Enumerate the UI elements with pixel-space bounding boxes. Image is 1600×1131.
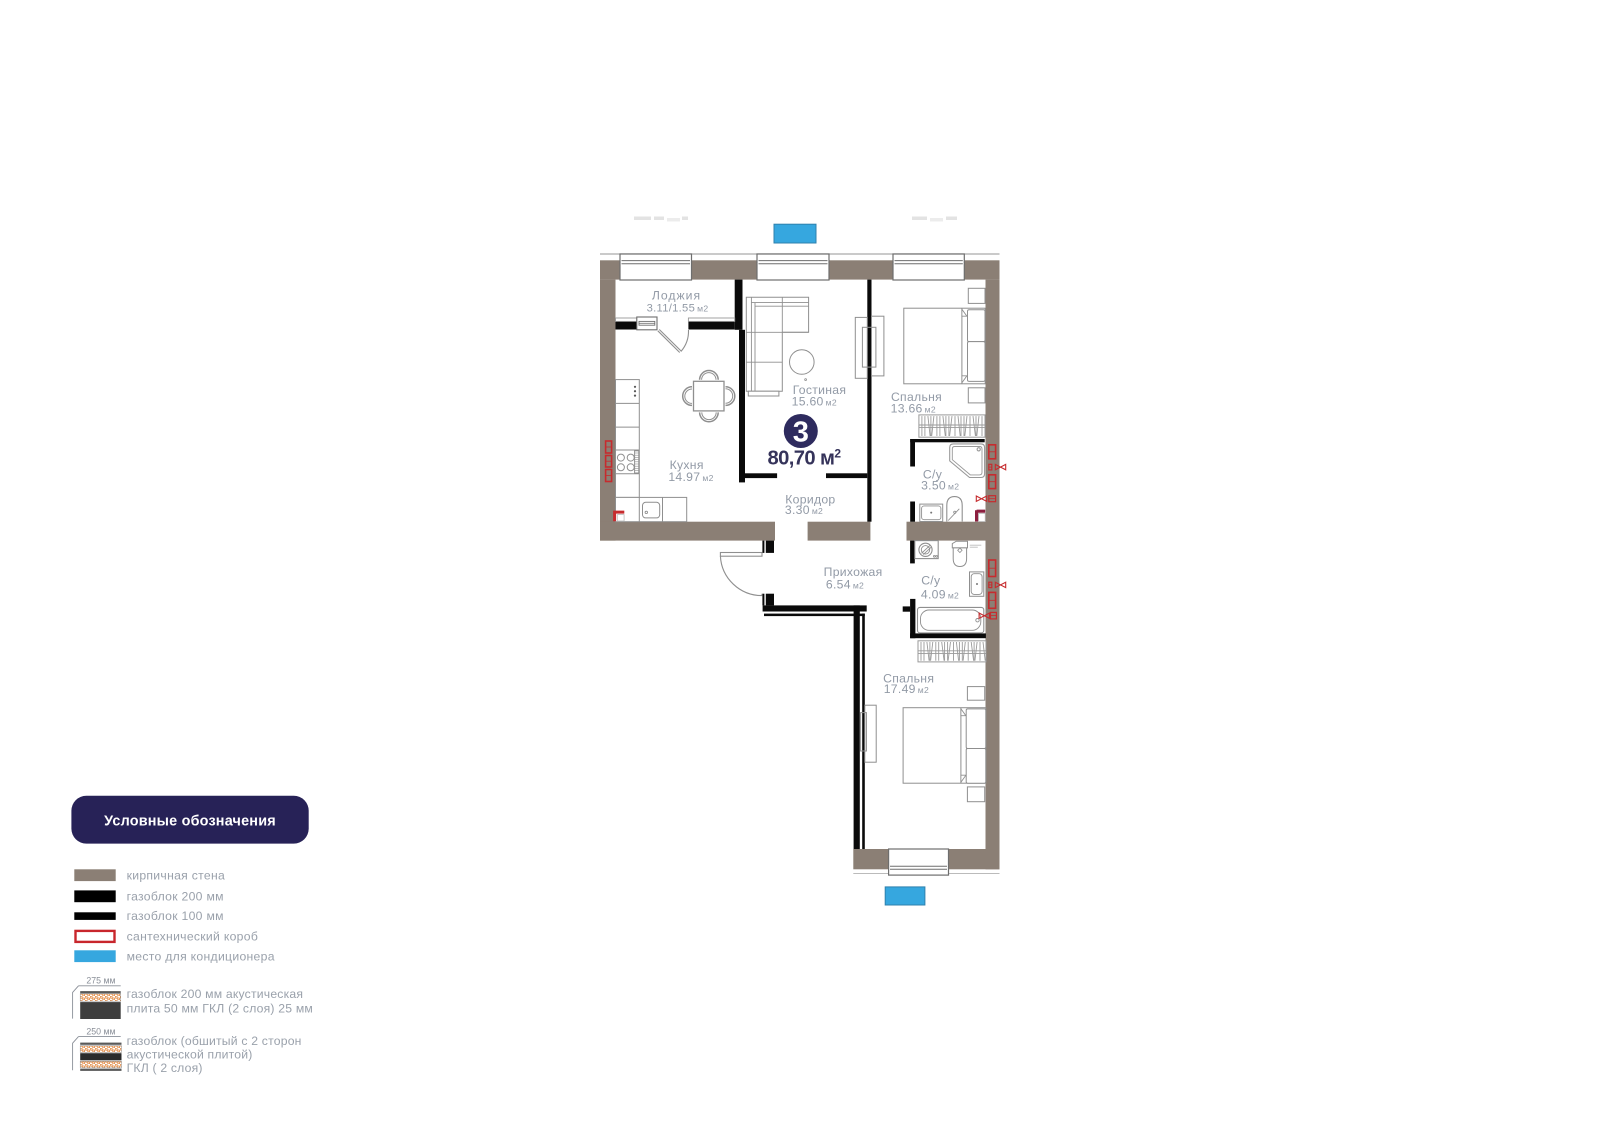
svg-text:250 мм: 250 мм	[86, 1026, 115, 1036]
svg-text:газоблок 200 мм: газоблок 200 мм	[127, 889, 224, 903]
svg-text:14.97 м2: 14.97 м2	[668, 470, 713, 484]
svg-text:17.49 м2: 17.49 м2	[884, 682, 929, 696]
svg-text:ГКЛ ( 2 слоя): ГКЛ ( 2 слоя)	[127, 1061, 203, 1075]
svg-text:плита 50 мм ГКЛ (2 слоя) 25 мм: плита 50 мм ГКЛ (2 слоя) 25 мм	[127, 1001, 313, 1015]
svg-text:Лоджия: Лоджия	[652, 289, 701, 303]
svg-text:кирпичная стена: кирпичная стена	[127, 868, 226, 882]
svg-text:275 мм: 275 мм	[86, 975, 115, 985]
svg-text:газоблок (обшитый с 2 сторон: газоблок (обшитый с 2 сторон	[127, 1034, 302, 1048]
svg-text:газоблок 200 мм акустическая: газоблок 200 мм акустическая	[127, 987, 304, 1001]
svg-text:80,70 м2: 80,70 м2	[768, 447, 842, 470]
svg-text:6.54 м2: 6.54 м2	[826, 578, 864, 592]
svg-text:3: 3	[793, 417, 809, 449]
svg-text:сантехнический короб: сантехнический короб	[127, 929, 259, 943]
svg-text:15.60 м2: 15.60 м2	[792, 395, 837, 409]
svg-text:3.30 м2: 3.30 м2	[785, 503, 823, 517]
svg-text:3.11/1.55 м2: 3.11/1.55 м2	[647, 302, 709, 314]
svg-text:С/у: С/у	[921, 574, 941, 588]
svg-text:13.66 м2: 13.66 м2	[891, 401, 936, 415]
svg-text:3.50 м2: 3.50 м2	[921, 478, 959, 492]
svg-text:Условные обозначения: Условные обозначения	[104, 814, 276, 830]
svg-text:акустической плитой): акустической плитой)	[127, 1048, 253, 1062]
svg-text:4.09 м2: 4.09 м2	[921, 588, 959, 602]
svg-text:место для кондиционера: место для кондиционера	[127, 949, 275, 963]
svg-text:газоблок 100 мм: газоблок 100 мм	[127, 909, 224, 923]
